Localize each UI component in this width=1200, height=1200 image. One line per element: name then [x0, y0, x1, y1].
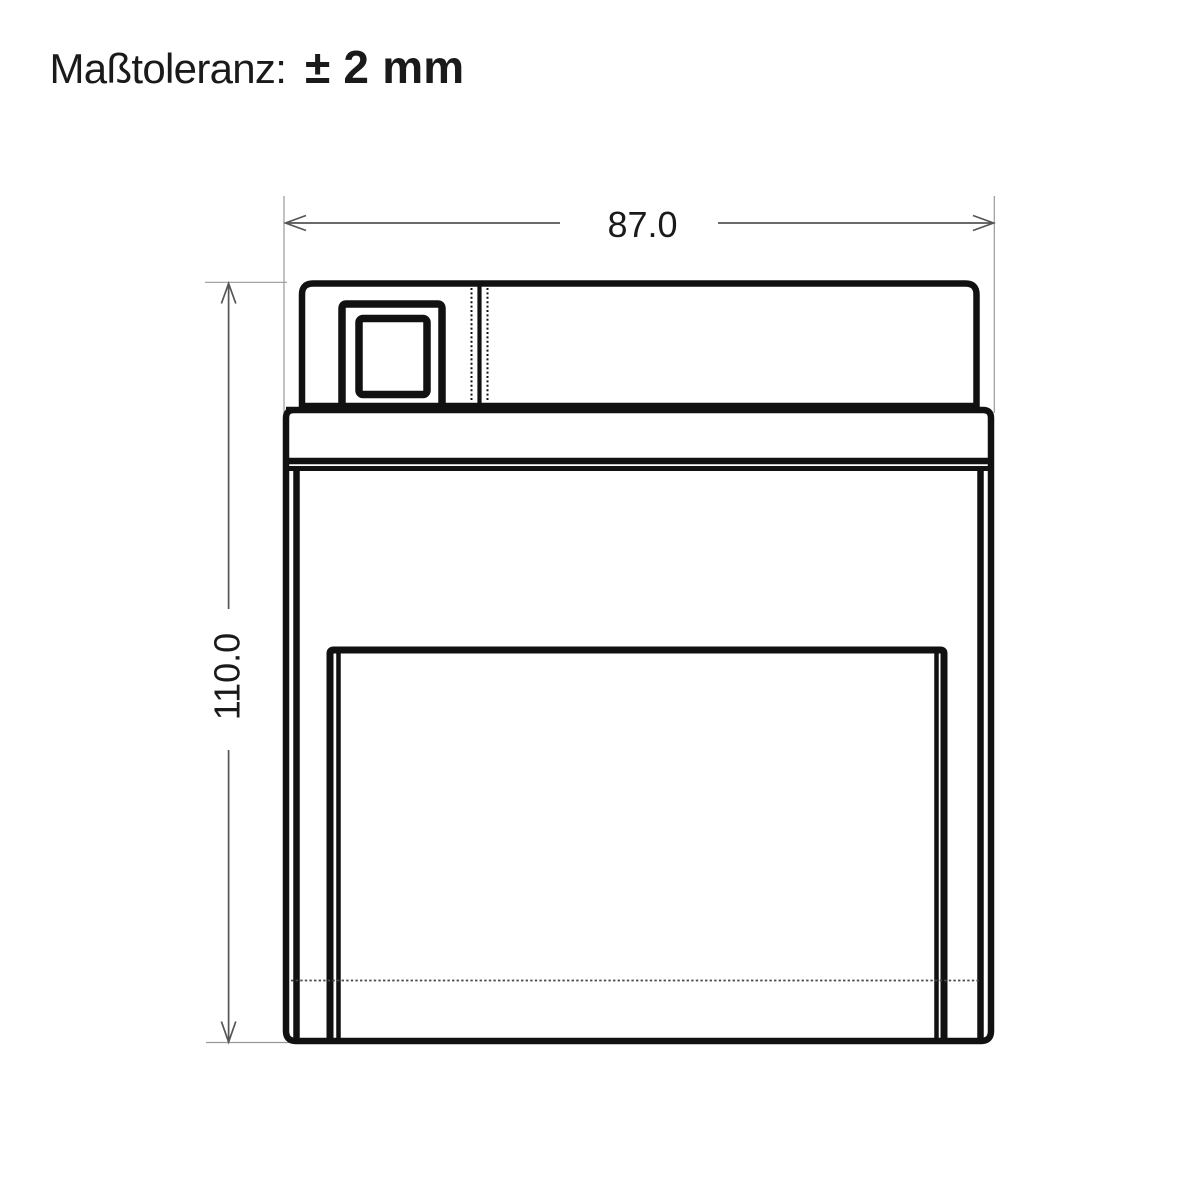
svg-text:Maßtoleranz:: Maßtoleranz: — [50, 45, 287, 92]
svg-text:87.0: 87.0 — [607, 204, 677, 245]
svg-text:± 2 mm: ± 2 mm — [305, 41, 464, 93]
svg-text:110.0: 110.0 — [207, 633, 248, 720]
